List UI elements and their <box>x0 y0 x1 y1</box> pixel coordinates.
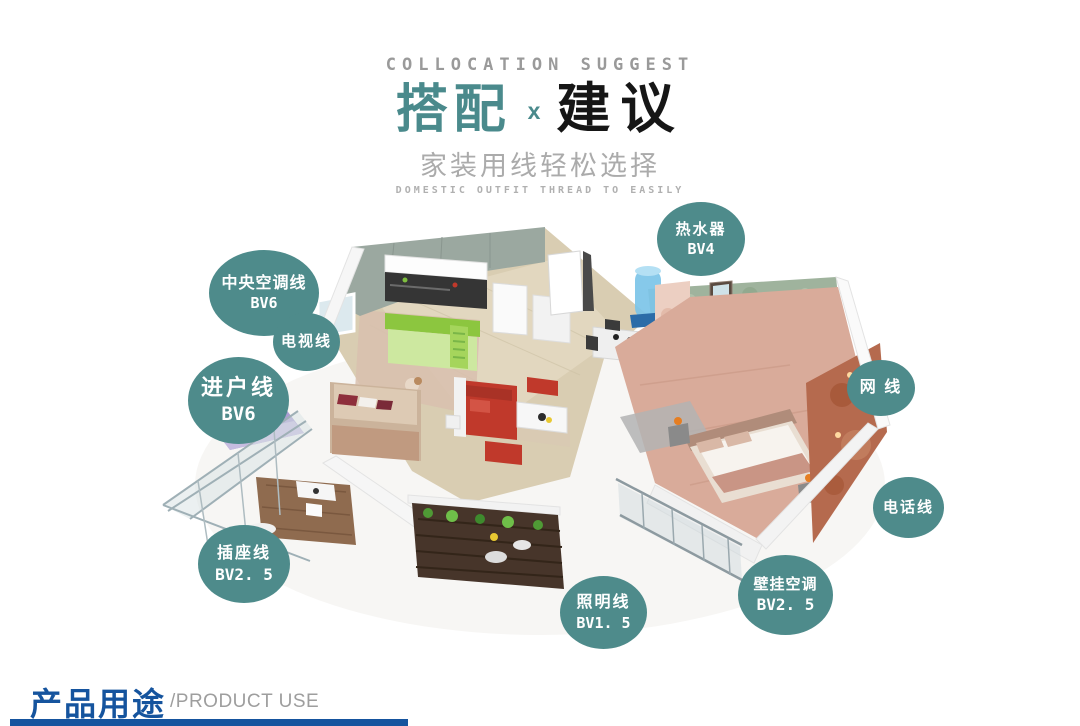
bubble-network-wire: 网 线 <box>847 360 915 416</box>
header-title-right: 建议 <box>556 79 684 139</box>
bubble-wall-ac-label: 壁挂空调 <box>753 576 817 594</box>
header-title-left: 搭配 <box>396 81 512 139</box>
header-eyebrow: COLLOCATION SUGGEST <box>0 55 1080 75</box>
bubble-tv-wire-label: 电视线 <box>281 333 332 351</box>
header: COLLOCATION SUGGEST 搭配x建议 家装用线轻松选择 DOMES… <box>0 55 1080 196</box>
bubble-lighting-wire-label: 照明线 <box>576 593 630 612</box>
bubble-lighting-wire-spec: BV1. 5 <box>576 614 630 632</box>
section-subtitle-product-use: /PRODUCT USE <box>170 691 319 713</box>
header-title: 搭配x建议 <box>0 82 1080 136</box>
bubble-entry-wire-label: 进户线 <box>201 375 276 401</box>
patio <box>412 503 564 589</box>
bubble-lighting-wire: 照明线BV1. 5 <box>560 576 647 649</box>
bubble-central-ac-label: 中央空调线 <box>221 274 306 293</box>
bubble-water-heater-spec: BV4 <box>687 240 714 258</box>
bubble-socket-wire: 插座线BV2. 5 <box>198 525 290 603</box>
bubble-entry-wire-spec: BV6 <box>221 403 255 426</box>
header-subtitle: 家装用线轻松选择 <box>0 144 1080 183</box>
bubble-socket-wire-spec: BV2. 5 <box>215 565 273 584</box>
entrance-door <box>548 251 594 315</box>
bubble-wall-ac-spec: BV2. 5 <box>757 595 815 614</box>
bubble-wall-ac: 壁挂空调BV2. 5 <box>738 555 833 635</box>
bubble-central-ac-spec: BV6 <box>250 294 277 312</box>
bubble-socket-wire-label: 插座线 <box>217 544 271 563</box>
page: COLLOCATION SUGGEST 搭配x建议 家装用线轻松选择 DOMES… <box>0 0 1080 726</box>
bubble-network-wire-label: 网 线 <box>860 378 902 397</box>
bubble-water-heater-label: 热水器 <box>675 221 726 239</box>
section-underline-bar <box>10 719 408 726</box>
bubble-tv-wire: 电视线 <box>273 313 340 371</box>
bubble-phone-wire-label: 电话线 <box>883 499 934 517</box>
guest-bed <box>330 382 421 461</box>
bubble-phone-wire: 电话线 <box>873 477 944 538</box>
header-title-separator: x <box>528 98 541 124</box>
bubble-entry-wire: 进户线BV6 <box>188 357 289 444</box>
bubble-water-heater: 热水器BV4 <box>657 202 745 276</box>
